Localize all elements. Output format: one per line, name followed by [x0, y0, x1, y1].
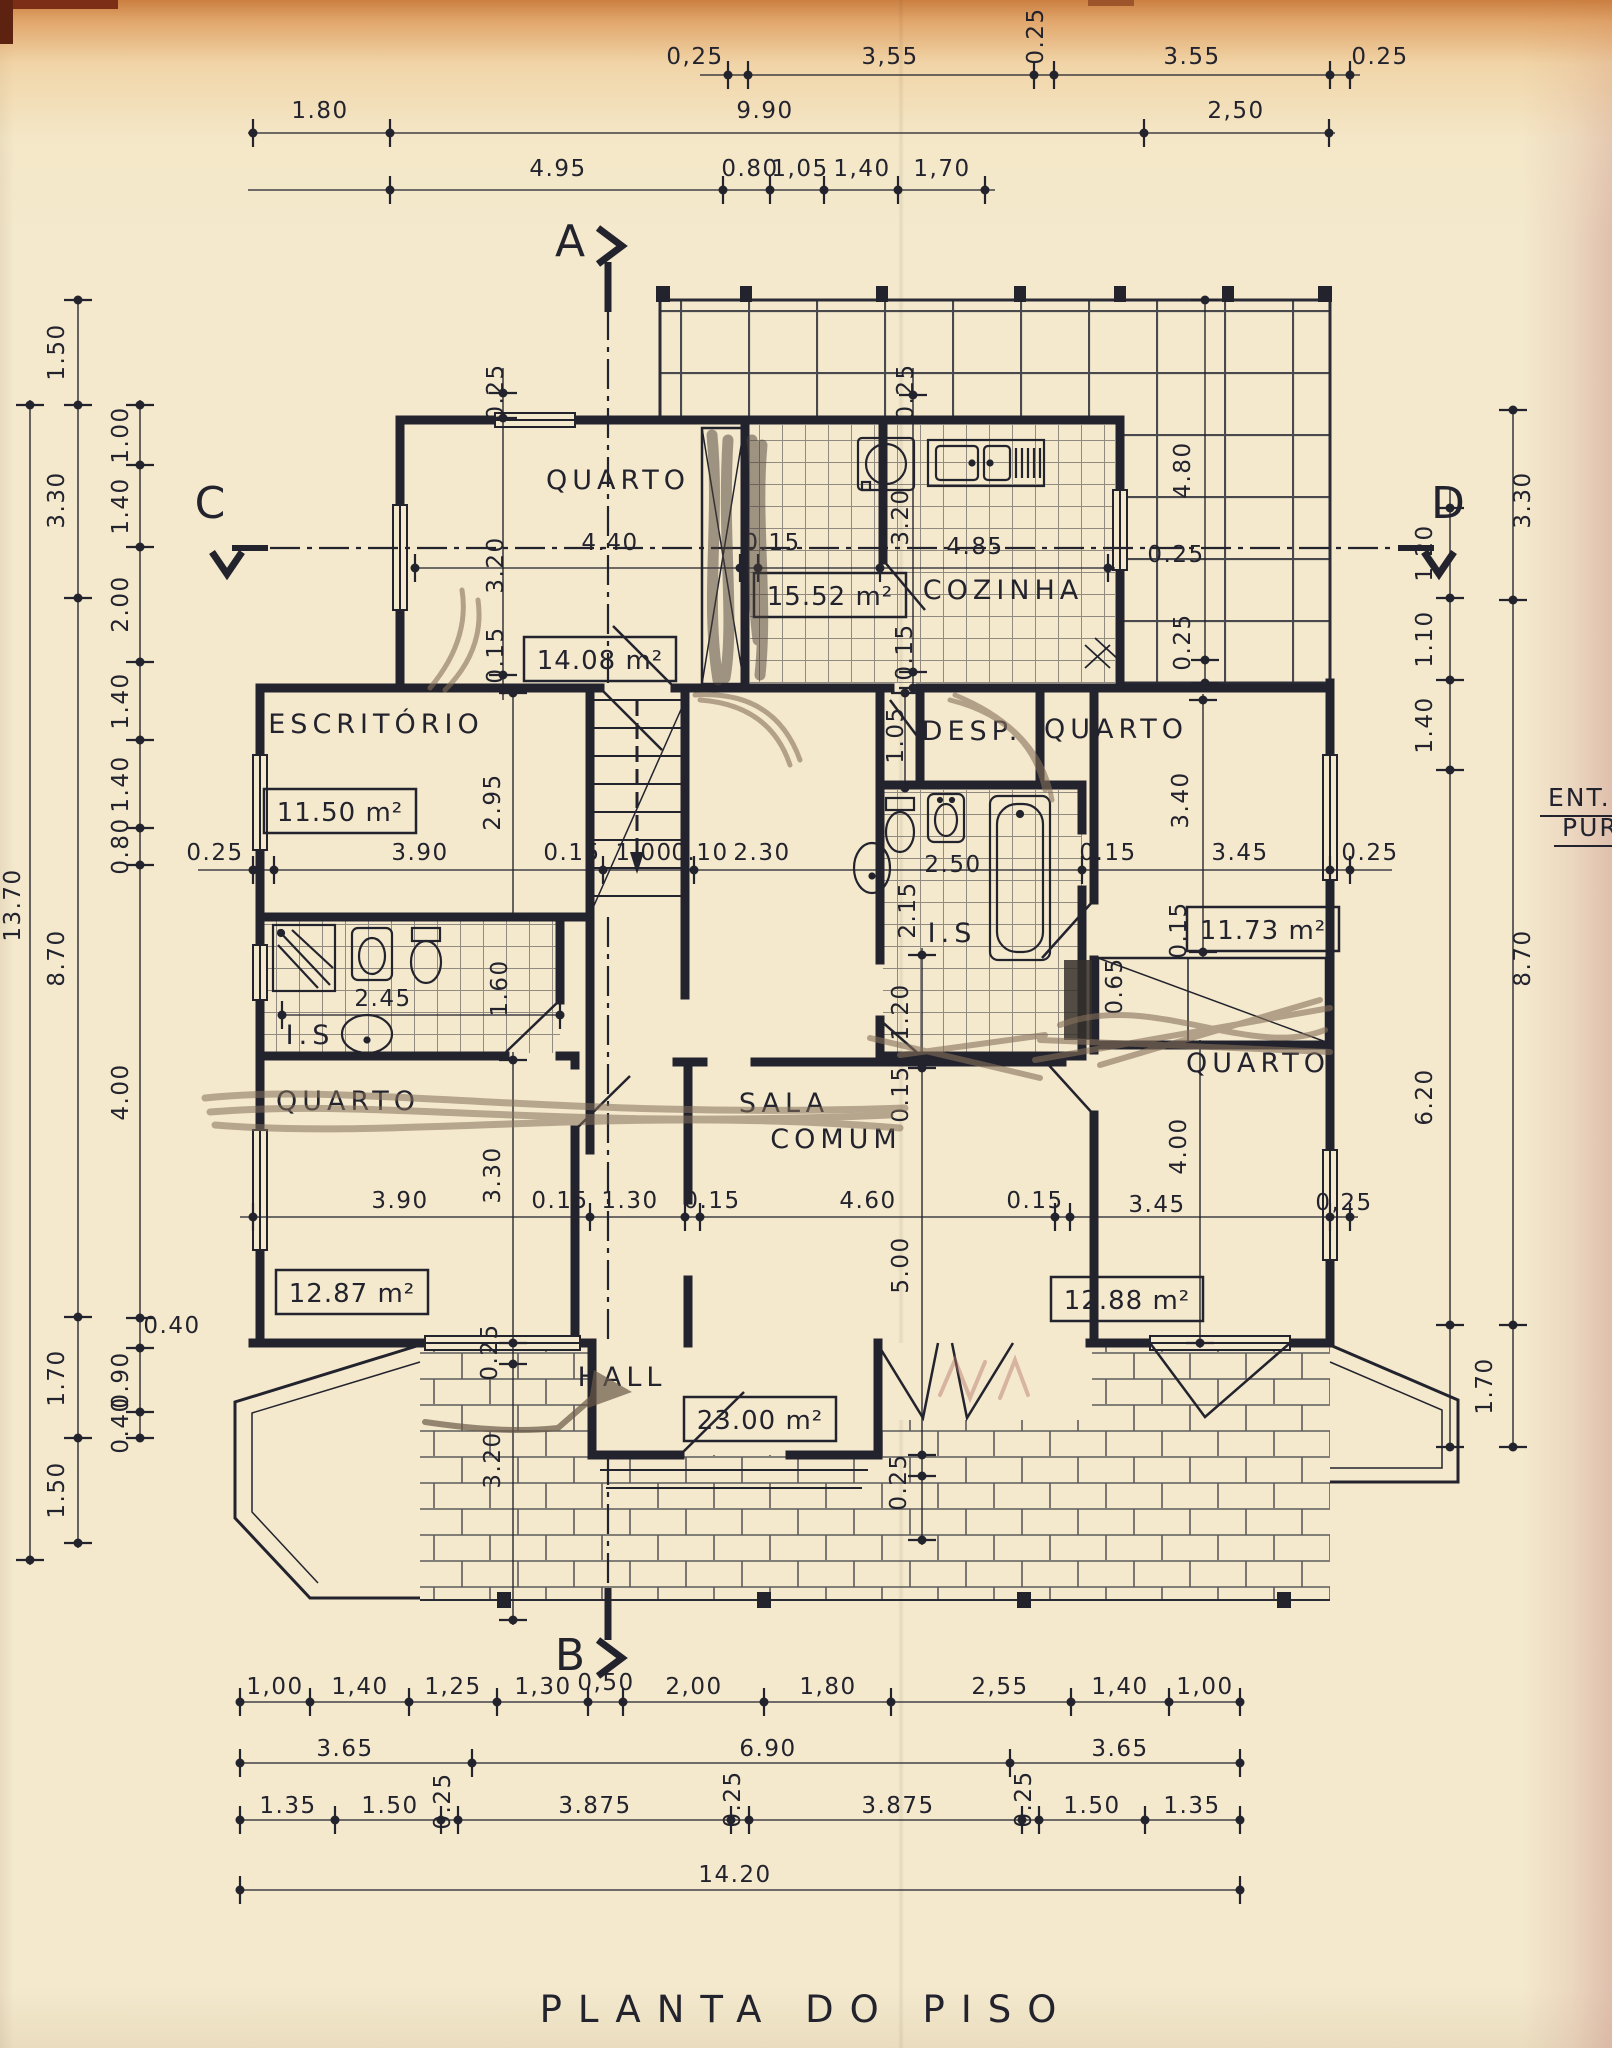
section-arrow-a — [598, 228, 622, 264]
dim-label: 3.65 — [1091, 1736, 1148, 1762]
dim-label: 3.30 — [480, 1146, 506, 1203]
dim-label: 0.15 — [683, 1188, 740, 1214]
drawing-title: PLANTA DO PISO — [0, 1988, 1612, 2031]
dim-label: 5.00 — [888, 1236, 914, 1293]
dim-label: 4.60 — [839, 1188, 896, 1214]
dim-label: 8.70 — [1510, 929, 1536, 986]
dim-label: 0.25 — [886, 1453, 912, 1510]
dim-label: 0.15 — [531, 1188, 588, 1214]
dim-label: 0,25 — [1315, 1190, 1372, 1216]
room-name-label: QUARTO — [546, 465, 690, 496]
dim-label: 2.45 — [354, 986, 411, 1012]
dim-label: 1.80 — [291, 98, 348, 124]
dim-label: 1.50 — [44, 1461, 70, 1518]
chimney — [1064, 960, 1092, 1040]
dim-label: 3.90 — [371, 1188, 428, 1214]
room-area-label: 11.73 m² — [1200, 916, 1326, 946]
dim-label: 1.50 — [1063, 1793, 1120, 1819]
dim-label: 1.10 — [1412, 610, 1438, 667]
dim-label: 3.90 — [391, 840, 448, 866]
window — [1150, 1336, 1290, 1350]
room-name-label: ESCRITÓRIO — [268, 708, 484, 740]
dim-label: 1.30 — [601, 1188, 658, 1214]
dim-label: 1,40 — [331, 1674, 388, 1700]
dim-label: 3.65 — [316, 1736, 373, 1762]
dim-label: 4.85 — [946, 534, 1003, 560]
dim-label: 9.90 — [736, 98, 793, 124]
dim-label: 0.25 — [430, 1772, 456, 1829]
dim-label: 2.50 — [924, 852, 981, 878]
dim-chain — [1436, 488, 1464, 1452]
dim-label: 3.875 — [861, 1793, 934, 1819]
dim-label: 1,70 — [913, 156, 970, 182]
dim-label: 0.25 — [1023, 7, 1049, 64]
section-marker-letter: A — [555, 216, 585, 267]
dim-label: 1.40 — [1412, 696, 1438, 753]
floor-plan-drawing: 0,253,550.253.550.251.809.902,504.950.80… — [0, 0, 1612, 2048]
dim-label: 0.80 — [721, 156, 778, 182]
dim-label: 13.70 — [0, 868, 26, 941]
room-area-label: 14.08 m² — [537, 646, 663, 676]
dim-label: 0.15 — [1079, 840, 1136, 866]
section-arrow-c — [212, 552, 242, 574]
dim-label: 3.45 — [1128, 1192, 1185, 1218]
dim-label: 1.50 — [44, 323, 70, 380]
dim-label: 3.30 — [1510, 471, 1536, 528]
room-area-label: 12.87 m² — [289, 1279, 415, 1309]
dim-label: 1,40 — [1091, 1674, 1148, 1700]
dim-label: 1,05 — [771, 156, 828, 182]
dim-label: 8.70 — [44, 929, 70, 986]
dim-label: 2,00 — [665, 1674, 722, 1700]
kitchen-tiles — [750, 425, 1115, 683]
dim-label: 0.40 — [108, 1396, 134, 1453]
dim-label: 0.25 — [1341, 840, 1398, 866]
dim-label: 0.25 — [477, 1323, 503, 1380]
dim-label: 2,50 — [1207, 98, 1264, 124]
section-marker-letter: B — [555, 1630, 585, 1681]
window — [393, 505, 407, 610]
staircase — [592, 700, 683, 910]
room-name-label: I.S — [286, 1020, 335, 1051]
dim-label: 1.70 — [44, 1349, 70, 1406]
dim-label: 3.55 — [1163, 44, 1220, 70]
side-note-text: ENT. A — [1548, 783, 1612, 812]
dim-label: 3.20 — [483, 536, 509, 593]
dim-label: 14.20 — [698, 1862, 771, 1888]
dim-label: 3.20 — [888, 488, 914, 545]
dim-label: 0,50 — [577, 1670, 634, 1696]
dim-label: 4.95 — [529, 156, 586, 182]
dim-label: 0.40 — [143, 1313, 200, 1339]
window — [253, 1130, 267, 1250]
dim-label: 1.35 — [259, 1793, 316, 1819]
dim-label: 4.00 — [108, 1063, 134, 1120]
dim-label: 3.875 — [558, 1793, 631, 1819]
room-area-label: 15.52 m² — [767, 582, 893, 612]
dim-label: 4.40 — [581, 530, 638, 556]
room: ESCRITÓRIO11.50 m² — [264, 708, 484, 833]
dim-label: 0.25 — [1351, 44, 1408, 70]
dim-label: 2.30 — [733, 840, 790, 866]
dim-label: 1,00 — [1176, 1674, 1233, 1700]
room-name-label: COZINHA — [923, 575, 1084, 606]
window — [1113, 490, 1127, 570]
dim-label: 0.15 — [543, 840, 600, 866]
dim-label: 1,25 — [424, 1674, 481, 1700]
section-marker-letter: C — [195, 478, 226, 529]
dim-label: 3.20 — [480, 1431, 506, 1488]
dim-label: 3.40 — [1168, 771, 1194, 828]
dim-label: 0.15 — [892, 623, 918, 680]
dim-label: 0.65 — [1102, 957, 1128, 1014]
window — [253, 945, 267, 1000]
dim-label: 1,00 — [246, 1674, 303, 1700]
dim-label: 4.00 — [1166, 1117, 1192, 1174]
room-name-label: DESP. — [922, 716, 1023, 747]
room-name-label: I.S — [928, 918, 977, 949]
dim-label: 3.45 — [1211, 840, 1268, 866]
room-name-label: QUARTO — [1044, 714, 1188, 745]
dim-label: 0.25 — [483, 363, 509, 420]
dim-label: 1,40 — [833, 156, 890, 182]
dim-label: 0.25 — [1170, 613, 1196, 670]
side-note-text: PURG — [1562, 813, 1612, 842]
dim-label: 1.40 — [108, 755, 134, 812]
dim-label: 1.40 — [108, 672, 134, 729]
dim-label: 2.95 — [480, 773, 506, 830]
dim-label: 4.80 — [1170, 441, 1196, 498]
dim-label: 1,80 — [799, 1674, 856, 1700]
dim-chain — [126, 400, 154, 1443]
room: DESP. — [922, 716, 1023, 747]
dim-label: 3,55 — [861, 44, 918, 70]
dim-label: 0.25 — [1147, 542, 1204, 568]
dim-label: 0.25 — [186, 840, 243, 866]
dim-label: 0,25 — [666, 44, 723, 70]
dim-label: 0.10 — [671, 840, 728, 866]
dim-label: 1.05 — [883, 706, 909, 763]
dim-label: 2.15 — [895, 881, 921, 938]
dim-label: 0.25 — [720, 1770, 746, 1827]
dim-label: 1.00 — [108, 406, 134, 463]
room: I.S — [928, 918, 977, 949]
dim-label: 1.70 — [1472, 1357, 1498, 1414]
room-area-label: 11.50 m² — [277, 798, 403, 828]
dim-label: 0.15 — [483, 626, 509, 683]
dim-label: 0.25 — [1011, 1770, 1037, 1827]
dim-label: 6.90 — [739, 1736, 796, 1762]
dim-label: 1.50 — [361, 1793, 418, 1819]
dim-chain — [16, 400, 44, 1565]
floor-patterns — [235, 286, 1458, 1608]
dim-label: 2.00 — [108, 575, 134, 632]
entry-steps-floor — [877, 1343, 1092, 1420]
dim-label: 1.00 — [615, 840, 672, 866]
dim-label: 0.80 — [108, 817, 134, 874]
dim-label: 0.15 — [1006, 1188, 1063, 1214]
dim-label: 2,55 — [971, 1674, 1028, 1700]
scanned-floor-plan-page: 0,253,550.253.550.251.809.902,504.950.80… — [0, 0, 1612, 2048]
dim-label: 1.20 — [888, 983, 914, 1040]
dim-label: 3.30 — [44, 471, 70, 528]
side-note: ENT. APURG — [1540, 783, 1612, 846]
dim-label: 1.60 — [487, 959, 513, 1016]
dim-label: 1.35 — [1163, 1793, 1220, 1819]
section-marker-letter: D — [1431, 478, 1465, 529]
dim-label: 0.25 — [893, 363, 919, 420]
room: I.S — [286, 1020, 335, 1051]
room-area-label: 12.88 m² — [1064, 1286, 1190, 1316]
dim-label: 1.40 — [108, 477, 134, 534]
dim-chain — [1499, 406, 1527, 1452]
room-area-label: 23.00 m² — [697, 1406, 823, 1436]
dim-label: 1.20 — [1412, 524, 1438, 581]
dim-label: 6.20 — [1412, 1068, 1438, 1125]
